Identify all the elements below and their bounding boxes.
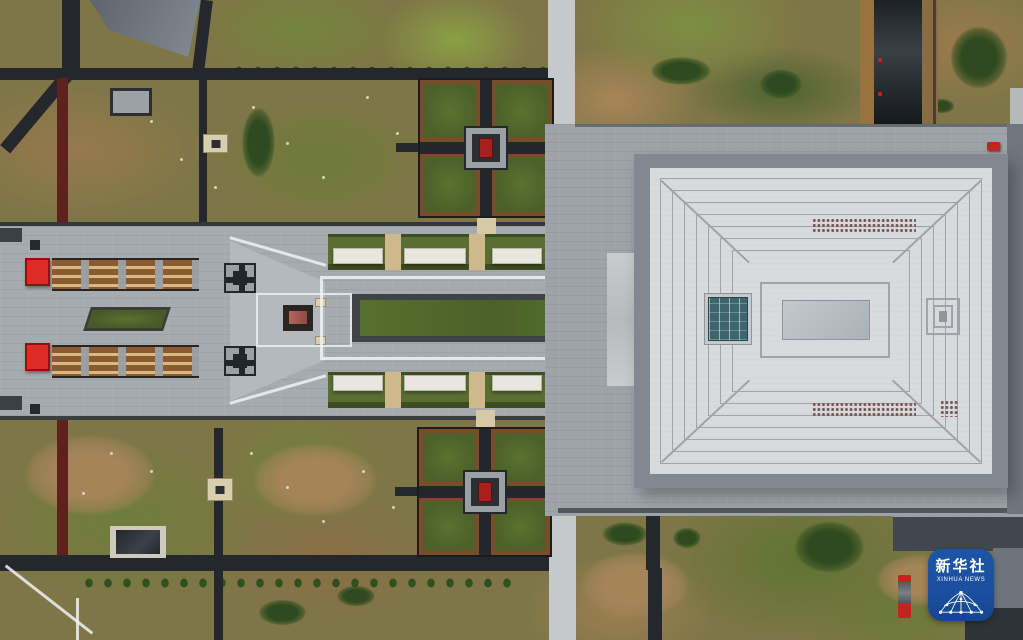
young-tree xyxy=(322,176,325,179)
xinhua-badge: 新华社 XINHUA NEWS xyxy=(928,549,994,621)
garden-center xyxy=(463,470,507,514)
truck-trailer xyxy=(898,582,911,604)
garden-center xyxy=(464,126,508,170)
path-node xyxy=(203,134,228,153)
canopy xyxy=(404,248,466,264)
dark-building-bottomright xyxy=(893,517,1023,551)
dirt-patch xyxy=(230,430,400,530)
young-tree xyxy=(396,132,399,135)
walkway-lower xyxy=(52,345,199,378)
shrub-cluster xyxy=(782,512,877,582)
building-stub xyxy=(0,228,22,242)
skylight-teal xyxy=(708,297,748,341)
entrance-ramp xyxy=(607,253,637,386)
red-pavilion xyxy=(478,482,492,502)
young-tree xyxy=(150,470,153,473)
walk-link xyxy=(469,234,485,270)
canopy xyxy=(333,248,383,264)
tree-row xyxy=(80,572,520,594)
walk-link xyxy=(469,372,485,408)
maroon-path xyxy=(57,78,68,222)
network-icon xyxy=(938,587,984,615)
cross-garden-bottom xyxy=(417,427,552,557)
dark-building-wall xyxy=(993,548,1023,610)
gate-post xyxy=(30,240,40,250)
canopy xyxy=(404,375,466,391)
path xyxy=(214,571,223,640)
fountain-top xyxy=(224,263,256,293)
garden-link-path xyxy=(476,410,495,428)
young-tree xyxy=(150,120,153,123)
walk-link xyxy=(385,234,401,270)
red-car xyxy=(987,142,1000,151)
road-east xyxy=(1007,124,1023,516)
roof-right-pavilion-core xyxy=(939,311,947,322)
triangle-roof-building xyxy=(85,0,205,60)
young-tree xyxy=(286,486,289,489)
grand-hall-roof xyxy=(634,154,1008,488)
building-stub xyxy=(0,396,22,410)
plaza-edge xyxy=(575,124,1010,127)
road-marker xyxy=(878,92,882,96)
vent-cluster-row-top xyxy=(812,218,916,234)
shrub-cluster xyxy=(640,52,722,90)
garden-center-inner xyxy=(472,134,500,162)
lawn-strip xyxy=(83,307,171,331)
gate-post xyxy=(30,404,40,414)
road xyxy=(62,0,80,78)
young-tree xyxy=(214,186,217,189)
shrub-cluster xyxy=(668,524,706,552)
truck-cab xyxy=(898,604,911,618)
young-tree xyxy=(286,142,289,145)
red-gate-top xyxy=(25,258,50,286)
garden-center-inner xyxy=(471,478,499,506)
truck-front xyxy=(898,575,911,582)
path xyxy=(646,508,660,570)
young-tree xyxy=(362,470,365,473)
red-gate-bottom xyxy=(25,343,50,371)
red-truck xyxy=(897,575,912,619)
canopy xyxy=(492,248,542,264)
shrub-cluster xyxy=(236,95,281,190)
young-tree xyxy=(392,506,395,509)
fountain-bottom xyxy=(224,346,256,376)
walkway-upper xyxy=(52,258,199,291)
small-building xyxy=(110,88,152,116)
path xyxy=(648,568,662,640)
roof-center-court xyxy=(782,300,870,340)
xinhua-cn: 新华社 xyxy=(935,559,986,574)
fountain-core xyxy=(233,271,247,285)
road xyxy=(0,555,562,571)
road-wet xyxy=(874,0,922,128)
road-marker xyxy=(878,58,882,62)
monument-sculpture xyxy=(289,311,307,324)
roof-right-pavilion xyxy=(926,298,960,335)
young-tree xyxy=(366,96,369,99)
maroon-path xyxy=(57,420,68,557)
young-tree xyxy=(250,452,253,455)
fountain-core xyxy=(233,354,247,368)
garden-arm xyxy=(395,487,419,496)
canopy-row-bottom xyxy=(328,372,546,408)
young-tree xyxy=(252,106,255,109)
canopy-row-top xyxy=(328,234,546,270)
young-tree xyxy=(82,492,85,495)
corner-path xyxy=(76,598,79,640)
dirt-patch xyxy=(0,420,180,530)
path-node xyxy=(207,478,233,501)
young-tree xyxy=(322,520,325,523)
aerial-photo: 新华社 XINHUA NEWS xyxy=(0,0,1023,640)
shrub-cluster xyxy=(250,595,315,630)
vent-cluster-row-bottom xyxy=(812,402,916,418)
cross-garden-top xyxy=(418,78,554,218)
shrub-cluster xyxy=(940,15,1018,100)
young-tree xyxy=(180,158,183,161)
pond xyxy=(116,530,160,554)
garden-arm xyxy=(396,143,420,152)
young-tree xyxy=(110,452,113,455)
dirt-patch xyxy=(560,540,710,630)
canopy xyxy=(333,375,383,391)
xinhua-en: XINHUA NEWS xyxy=(937,577,986,583)
vent-cluster-right xyxy=(940,400,958,417)
red-pavilion xyxy=(479,138,493,158)
building-corner xyxy=(1010,88,1023,126)
walk-link xyxy=(385,372,401,408)
path xyxy=(933,0,936,128)
canopy xyxy=(492,375,542,391)
plaza-edge xyxy=(558,508,1010,513)
shrub-cluster xyxy=(752,64,810,104)
